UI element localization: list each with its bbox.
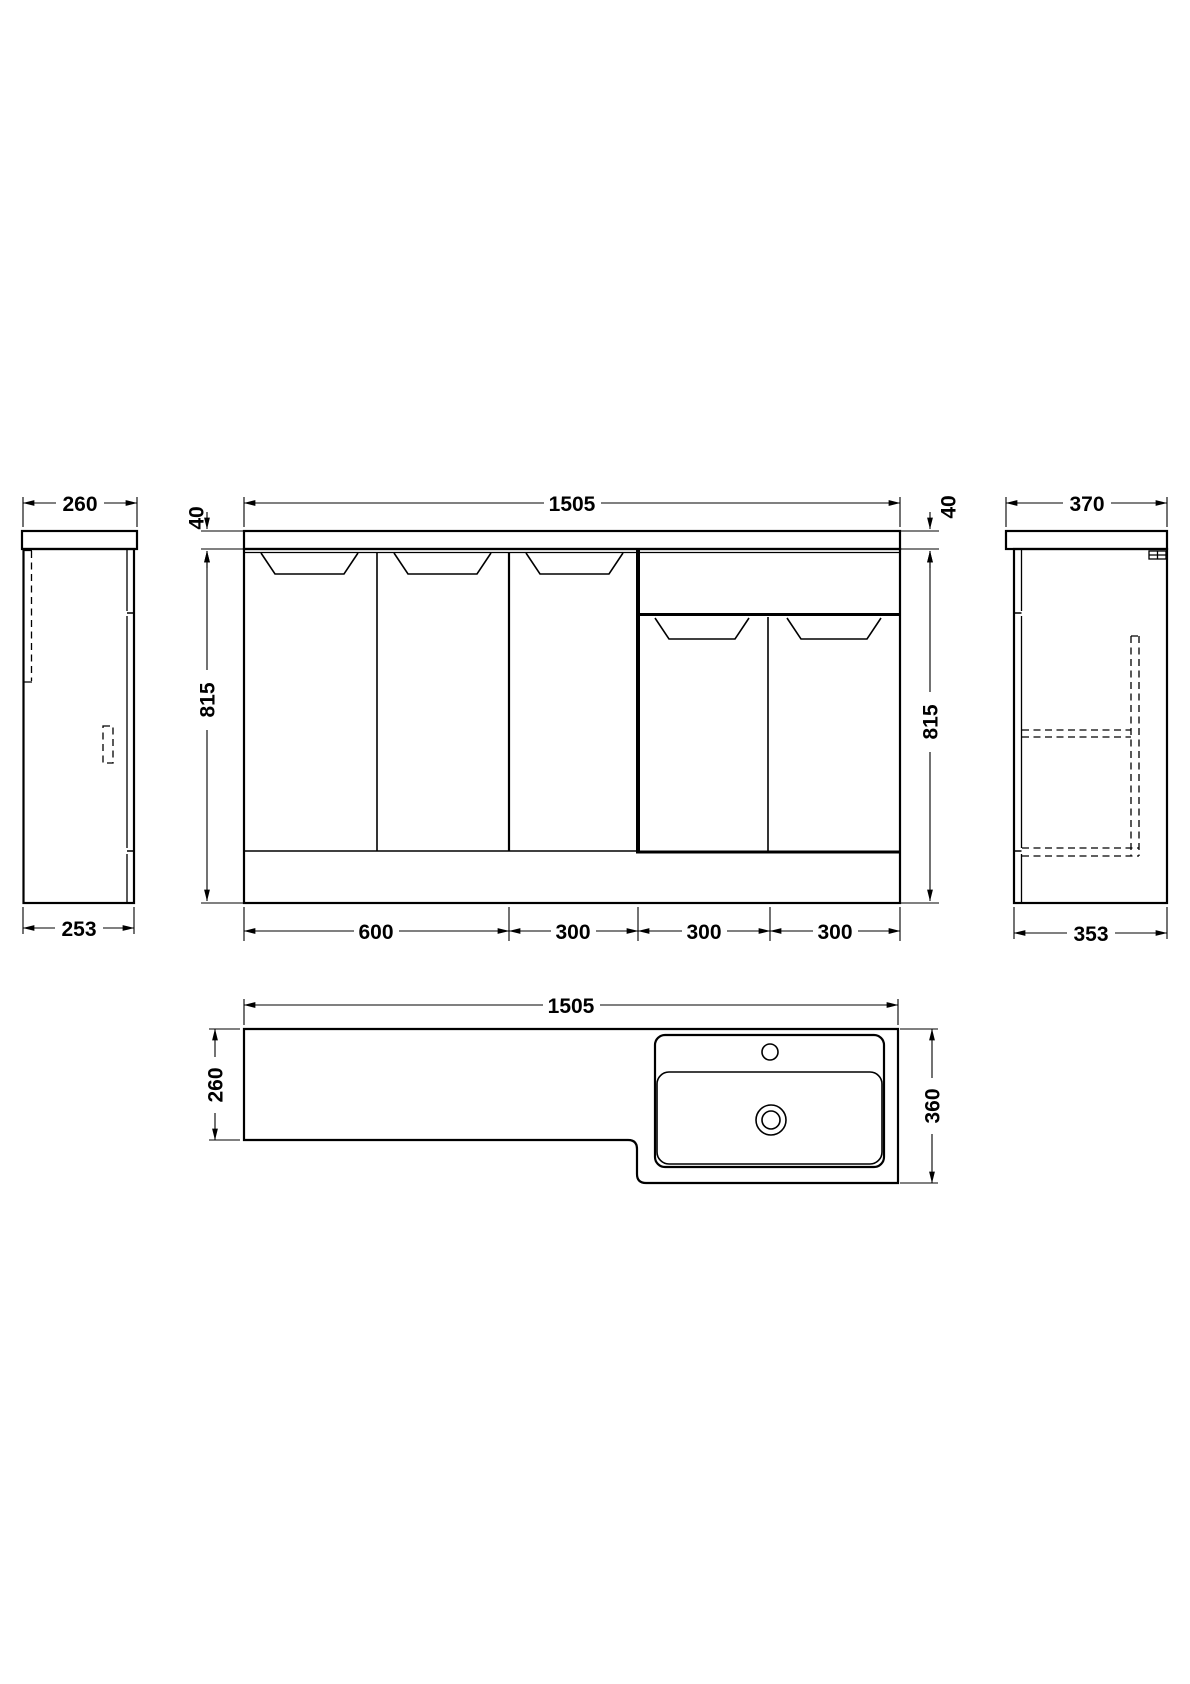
- dim-left-cabinet-depth: 253: [23, 907, 134, 941]
- plan-view: 1505 260 360: [202, 994, 945, 1183]
- tap-hole-icon: [762, 1044, 778, 1060]
- handle-icon-door3: [526, 553, 623, 574]
- front-view: 1505 40: [185, 492, 960, 944]
- dim-label-260: 260: [62, 493, 97, 516]
- plan-basin: [655, 1035, 884, 1167]
- dim-front-worktop-left: 40: [185, 506, 244, 568]
- left-view-wall-rail: [24, 551, 33, 683]
- dim-front-height-right: 815: [900, 551, 943, 903]
- right-view-hidden-lines: [1022, 636, 1139, 856]
- dim-label-815-right: 815: [919, 704, 942, 739]
- right-side-view: 370 353: [1006, 492, 1167, 946]
- dim-label-1505-front: 1505: [549, 493, 596, 516]
- dim-label-370: 370: [1069, 493, 1104, 516]
- basin-outer: [655, 1035, 884, 1167]
- waste-hole-outer-icon: [756, 1105, 786, 1135]
- dim-label-40-right: 40: [937, 495, 960, 518]
- dim-right-worktop-depth: 370: [1006, 492, 1167, 527]
- front-worktop: [244, 531, 900, 549]
- dim-label-300-b: 300: [686, 921, 721, 944]
- waste-hole-inner-icon: [762, 1111, 780, 1129]
- dim-label-253: 253: [61, 918, 96, 941]
- dim-label-815-left: 815: [196, 682, 219, 717]
- right-view-door-edge: [1014, 549, 1022, 903]
- dim-front-overall-width: 1505: [244, 492, 900, 527]
- dim-front-unit-widths: 600 300 300 300: [244, 907, 900, 944]
- dim-front-height-left: 815: [194, 551, 244, 903]
- dim-label-40-left: 40: [185, 506, 208, 529]
- dim-left-worktop-depth: 260: [23, 492, 137, 527]
- basin-bowl: [657, 1072, 882, 1164]
- left-side-view: 260 253: [22, 492, 137, 941]
- dim-label-600: 600: [358, 921, 393, 944]
- plan-worktop-outline: [244, 1029, 898, 1183]
- dim-plan-left-depth: 260: [202, 1029, 240, 1140]
- dim-label-360-plan: 360: [921, 1088, 944, 1123]
- left-view-hidden-handle: [103, 726, 113, 763]
- right-view-worktop: [1006, 531, 1167, 549]
- dim-right-cabinet-depth: 353: [1014, 907, 1167, 946]
- handle-icon-door2: [394, 553, 491, 574]
- drawing-svg: 260 253 1505: [0, 0, 1190, 1684]
- handle-icon-door1: [261, 553, 358, 574]
- dim-plan-overall-width: 1505: [244, 994, 898, 1025]
- dim-label-300-a: 300: [555, 921, 590, 944]
- left-view-cabinet: [24, 549, 135, 903]
- handle-icon-door4: [655, 618, 749, 639]
- dim-label-300-c: 300: [817, 921, 852, 944]
- handle-icon-door5: [787, 618, 881, 639]
- dim-label-1505-plan: 1505: [548, 995, 595, 1018]
- dim-label-260-plan: 260: [204, 1067, 227, 1102]
- wall-bracket-icon: [1149, 551, 1166, 559]
- front-cabinet: [244, 549, 900, 903]
- left-view-worktop: [22, 531, 137, 549]
- right-view-cabinet: [1014, 549, 1167, 903]
- technical-drawing: 260 253 1505: [0, 0, 1190, 1684]
- dim-label-353: 353: [1073, 923, 1108, 946]
- dim-plan-right-depth: 360: [900, 1029, 945, 1183]
